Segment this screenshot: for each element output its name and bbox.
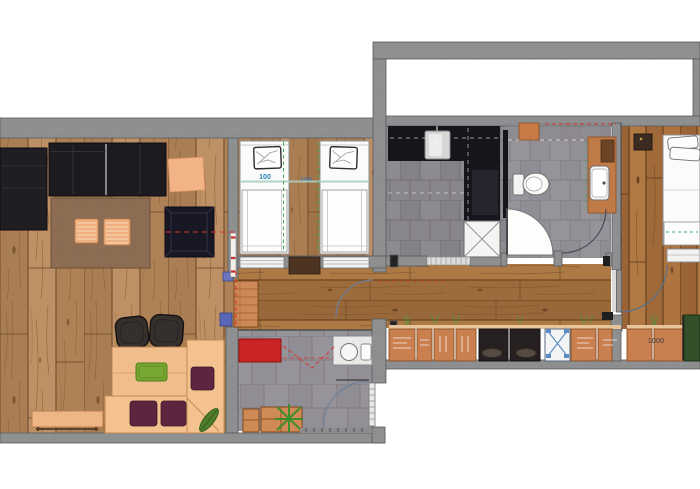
- svg-text:1000: 1000: [648, 336, 665, 345]
- svg-text:100: 100: [259, 174, 271, 181]
